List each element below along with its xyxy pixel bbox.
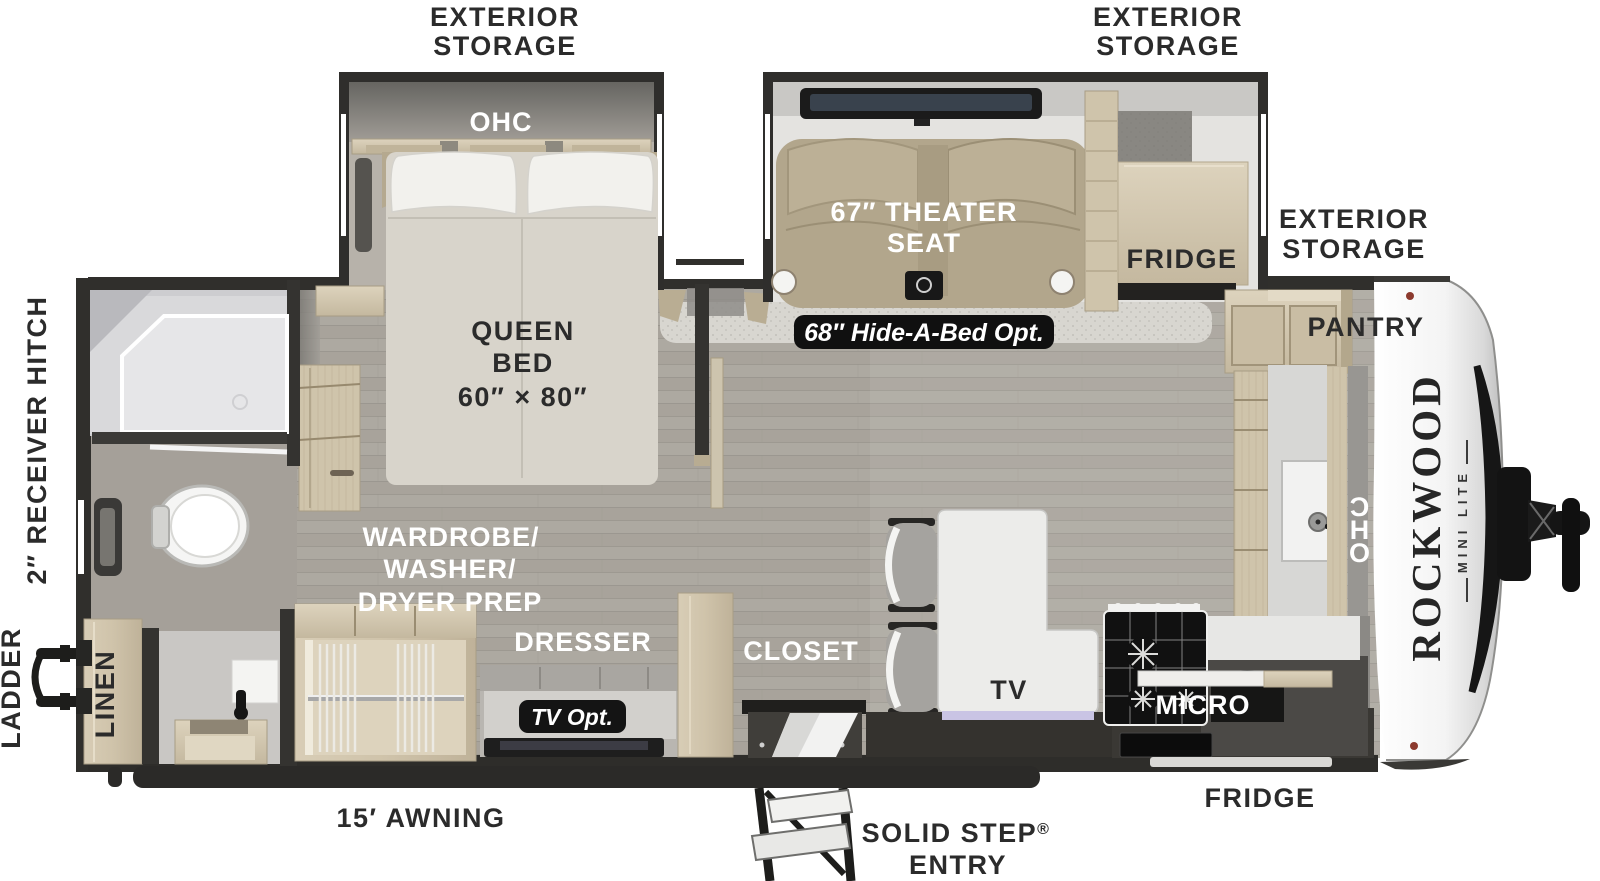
svg-text:STORAGE: STORAGE bbox=[1096, 31, 1240, 61]
svg-text:68″ Hide-A-Bed Opt.: 68″ Hide-A-Bed Opt. bbox=[804, 319, 1044, 347]
svg-text:60″ × 80″: 60″ × 80″ bbox=[458, 382, 588, 412]
svg-text:PANTRY: PANTRY bbox=[1308, 312, 1425, 342]
svg-text:FRIDGE: FRIDGE bbox=[1204, 783, 1315, 813]
svg-text:EXTERIOR: EXTERIOR bbox=[430, 2, 580, 32]
svg-text:ENTRY: ENTRY bbox=[909, 850, 1007, 880]
svg-text:LADDER: LADDER bbox=[0, 627, 26, 749]
svg-text:TV: TV bbox=[990, 675, 1028, 705]
svg-text:TV Opt.: TV Opt. bbox=[531, 704, 613, 730]
svg-text:STORAGE: STORAGE bbox=[433, 31, 577, 61]
svg-text:WARDROBE/: WARDROBE/ bbox=[363, 522, 540, 552]
svg-text:SEAT: SEAT bbox=[887, 228, 961, 258]
svg-text:DRYER PREP: DRYER PREP bbox=[358, 587, 543, 617]
svg-text:FRIDGE: FRIDGE bbox=[1126, 244, 1237, 274]
svg-text:MINI LITE: MINI LITE bbox=[1455, 469, 1470, 573]
svg-text:STORAGE: STORAGE bbox=[1282, 234, 1426, 264]
svg-text:LINEN: LINEN bbox=[90, 650, 120, 739]
svg-text:15′ AWNING: 15′ AWNING bbox=[337, 803, 506, 833]
svg-text:WASHER/: WASHER/ bbox=[383, 554, 516, 584]
svg-text:MICRO: MICRO bbox=[1156, 690, 1251, 720]
svg-text:67″ THEATER: 67″ THEATER bbox=[831, 197, 1018, 227]
svg-text:2″ RECEIVER HITCH: 2″ RECEIVER HITCH bbox=[22, 296, 52, 585]
svg-text:SOLID STEP®: SOLID STEP® bbox=[862, 818, 1051, 848]
svg-text:EXTERIOR: EXTERIOR bbox=[1093, 2, 1243, 32]
svg-text:ROCKWOOD: ROCKWOOD bbox=[1403, 372, 1449, 661]
svg-text:BED: BED bbox=[492, 348, 554, 378]
svg-text:OHC: OHC bbox=[470, 107, 533, 137]
svg-text:DRESSER: DRESSER bbox=[514, 627, 652, 657]
svg-text:QUEEN: QUEEN bbox=[471, 316, 575, 346]
svg-text:O: O bbox=[1349, 538, 1371, 568]
svg-text:CLOSET: CLOSET bbox=[743, 636, 859, 666]
svg-text:EXTERIOR: EXTERIOR bbox=[1279, 204, 1429, 234]
